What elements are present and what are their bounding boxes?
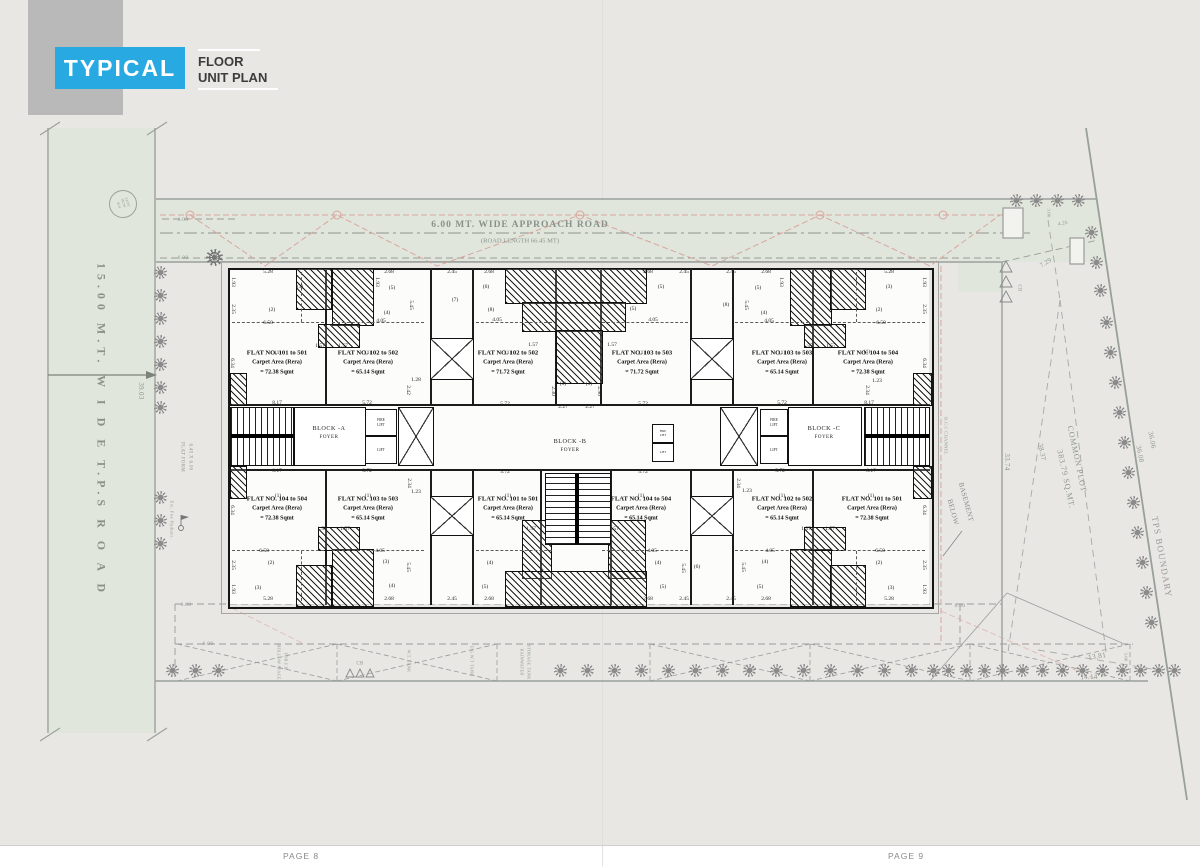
tree-icon	[1109, 376, 1122, 389]
dimension-label: (2)	[269, 307, 275, 313]
dimension-label: (1)	[638, 493, 644, 499]
dimension-label: 6.34	[229, 505, 235, 515]
tree-icon	[1127, 496, 1140, 509]
tree-icon	[1010, 194, 1023, 207]
dimension-label: 5.28	[884, 596, 894, 602]
tree-icon	[797, 664, 810, 677]
footer-strip	[0, 845, 1200, 867]
dimension-label: 2.90	[596, 386, 602, 396]
site-label: 6.00	[203, 641, 214, 647]
dimension-label: 2.68	[484, 596, 494, 602]
site-label: 13.81	[1087, 650, 1107, 662]
dimension-label: (2)	[876, 307, 882, 313]
dimension-label: (1)	[864, 349, 870, 355]
site-label: 33.74	[1003, 453, 1011, 470]
tree-icon	[1076, 664, 1089, 677]
dimension-label: 1.93	[921, 277, 927, 287]
tree-icon	[1145, 616, 1158, 629]
dimension-label: (4)	[487, 560, 493, 566]
dimension-label: 5.28	[263, 596, 273, 602]
dimension-label: 6.34	[921, 358, 927, 368]
dimension-label: 2.27	[558, 404, 568, 410]
dimension-label: 5.72	[638, 401, 648, 407]
dimension-label: 1.57	[607, 342, 617, 348]
dimension-label: 4.05	[647, 548, 657, 554]
dimension-label: 8.17	[272, 468, 282, 474]
dimension-label: 1.57	[340, 526, 350, 532]
dimension-label: (8)	[723, 302, 729, 308]
dimension-label: 2.45	[679, 596, 689, 602]
site-label: U.G.W.T TANK	[470, 645, 475, 676]
tree-icon	[581, 664, 594, 677]
tree-icon	[1085, 226, 1098, 239]
dimension-label: 2.45	[726, 596, 736, 602]
dimension-label: 5.72	[500, 469, 510, 475]
dimension-label: 5.72	[638, 469, 648, 475]
site-label: 7.29	[1039, 257, 1053, 270]
dimension-label: (4)	[389, 583, 395, 589]
dimension-label: 5.72	[500, 401, 510, 407]
dimension-label: 2.68	[643, 596, 653, 602]
dimension-label: (2)	[268, 560, 274, 566]
dimension-label: 2.34	[735, 478, 741, 488]
dimension-label: 8.17	[864, 400, 874, 406]
dimension-label: 2.34	[406, 478, 412, 488]
dimension-label: (7)	[452, 297, 458, 303]
dimension-label: 1.57	[825, 526, 835, 532]
page-number-right: PAGE 9	[888, 851, 924, 861]
dimension-label: 5.45	[743, 300, 749, 310]
tree-icon	[154, 514, 167, 527]
dimension-label: 1.93	[374, 277, 380, 287]
dimension-label: (1)	[560, 381, 566, 387]
tree-icon	[978, 664, 991, 677]
dimension-label: 2.68	[384, 596, 394, 602]
dimension-label: (5)	[482, 584, 488, 590]
dimension-label: 4.05	[376, 318, 386, 324]
dimension-label: 1.23	[742, 488, 752, 494]
tree-icon	[1168, 664, 1181, 677]
dimension-label: (4)	[762, 559, 768, 565]
dimension-label: 6.34	[921, 505, 927, 515]
site-label: CB	[356, 662, 363, 667]
sheet: TYPICAL FLOOR UNIT PLAN 6.00 MT. WIDE AP…	[0, 0, 1200, 866]
dimension-label: (3)	[888, 585, 894, 591]
tree-icon	[1090, 256, 1103, 269]
tree-icon	[1072, 194, 1085, 207]
dimension-label: 2.30	[550, 386, 556, 396]
tree-icon	[1136, 556, 1149, 569]
dimension-label: 2.42	[405, 385, 411, 395]
tree-icon	[927, 664, 940, 677]
tree-icon	[154, 491, 167, 504]
dimension-label: (1)	[365, 350, 371, 356]
dimension-label: 1.28	[411, 377, 421, 383]
dimension-label: 2.35	[921, 560, 927, 570]
tree-icon	[1134, 664, 1147, 677]
site-label: 6.00	[955, 603, 966, 609]
site-label: 6.45 X 6.00	[188, 444, 193, 471]
dimension-label: 2.35	[921, 304, 927, 314]
dimension-label: (1)	[365, 493, 371, 499]
dimension-label: 5.72	[775, 468, 785, 474]
dimension-label: (1)	[275, 493, 281, 499]
dimension-label: (1)	[868, 493, 874, 499]
dimension-label: 6.34	[229, 358, 235, 368]
site-label: W.T. TANK	[407, 650, 412, 673]
dimension-label: 1.57	[315, 343, 325, 349]
dimension-label: 5.45	[408, 300, 414, 310]
dimension-label: 4.05	[492, 317, 502, 323]
dimension-label: 4.05	[648, 317, 658, 323]
dimension-label: 1.93	[230, 584, 236, 594]
dimension-label: 5.45	[405, 562, 411, 572]
dimension-label: 1.93	[230, 277, 236, 287]
page-number-left: PAGE 8	[283, 851, 319, 861]
tree-icon	[689, 664, 702, 677]
dimension-label: (1)	[779, 350, 785, 356]
dimension-label: (4)	[761, 310, 767, 316]
tree-icon	[212, 664, 225, 677]
dimension-label: (5)	[658, 284, 664, 290]
tree-icon	[608, 664, 621, 677]
dimension-label: 6.50	[259, 548, 269, 554]
tree-icon	[154, 266, 167, 279]
tree-icon	[662, 664, 675, 677]
dimension-label: 1.57	[803, 343, 813, 349]
site-label: HOLLOW SPACE	[277, 644, 282, 679]
tree-icon	[1152, 664, 1165, 677]
tree-icon	[1096, 664, 1109, 677]
dimension-label: (1)	[505, 350, 511, 356]
tree-icon	[166, 664, 179, 677]
dimension-label: 6.50	[263, 320, 273, 326]
site-label: Ext. Fire Hydrant	[170, 501, 175, 538]
dimension-label: (2)	[876, 560, 882, 566]
dimension-label: 1.57	[801, 526, 811, 532]
footer-divider	[602, 846, 603, 866]
tree-icon	[154, 335, 167, 348]
tree-icon	[554, 664, 567, 677]
dimension-label: (5)	[389, 285, 395, 291]
site-label: STORAGE TANK	[527, 644, 532, 679]
site-label: CB	[1017, 284, 1022, 291]
tree-icon	[1131, 526, 1144, 539]
dimension-label: 2.68	[384, 269, 394, 275]
site-label: PLAT FORM	[180, 442, 185, 472]
tree-icon	[1100, 316, 1113, 329]
dimension-label: 2.45	[447, 596, 457, 602]
dimension-label: 8.17	[272, 400, 282, 406]
site-label: 3.00	[1047, 208, 1052, 217]
tree-icon	[1094, 284, 1107, 297]
dimension-label: (6)	[483, 284, 489, 290]
dimension-label: (1)	[586, 381, 592, 387]
site-label: 38.37	[1036, 443, 1047, 462]
dimension-label: 2.68	[761, 269, 771, 275]
tree-icon	[154, 312, 167, 325]
dimension-label: 2.68	[643, 269, 653, 275]
dimension-label: 1.23	[872, 378, 882, 384]
dimension-label: (5)	[660, 584, 666, 590]
site-label: 6.00	[178, 217, 189, 223]
tree-icon	[1036, 664, 1049, 677]
tree-icon	[905, 664, 918, 677]
dimension-label: (3)	[383, 559, 389, 565]
site-label: 36.06	[1146, 431, 1157, 449]
tree-icon	[1122, 466, 1135, 479]
dimension-label: 2.45	[447, 269, 457, 275]
dimension-label: 2.34	[864, 385, 870, 395]
dimension-label: (1)	[275, 350, 281, 356]
dimension-label: 5.72	[362, 400, 372, 406]
tree-icon	[942, 664, 955, 677]
dimension-label: 1.57	[338, 343, 348, 349]
dimension-label: 2.45	[679, 269, 689, 275]
dimension-label: 4.05	[765, 548, 775, 554]
dimension-label: 2.27	[585, 404, 595, 410]
dimension-label: 1.57	[609, 526, 619, 532]
tree-icon	[960, 664, 973, 677]
dimension-label: 4.05	[764, 318, 774, 324]
dimension-label: (1)	[639, 350, 645, 356]
dimension-label: 2.45	[726, 269, 736, 275]
dimension-label: 1.57	[317, 526, 327, 532]
site-label: 4.26	[1058, 221, 1069, 228]
dimension-label: 5.28	[884, 269, 894, 275]
dimension-label: (1)	[779, 493, 785, 499]
tree-icon	[154, 289, 167, 302]
dimension-label: (5)	[757, 584, 763, 590]
tree-icon	[1051, 194, 1064, 207]
dimension-label: 1.57	[826, 343, 836, 349]
dimension-label: 2.35	[230, 560, 236, 570]
dimension-label: 5.72	[777, 400, 787, 406]
site-label: FOR F.B.	[284, 653, 289, 671]
dimension-label: 5.45	[740, 562, 746, 572]
tree-icon	[1116, 664, 1129, 677]
tree-icon	[154, 537, 167, 550]
dimension-label: 1.57	[528, 342, 538, 348]
dimension-label: 2.35	[230, 304, 236, 314]
dimension-label: 5.28	[263, 269, 273, 275]
dimension-label: (4)	[655, 560, 661, 566]
dimension-label: (3)	[255, 585, 261, 591]
tree-icon	[1113, 406, 1126, 419]
site-label: RAINWATER	[520, 649, 525, 676]
tree-icon	[635, 664, 648, 677]
site-label: 6.00	[178, 255, 189, 261]
dimension-label: 2.68	[761, 596, 771, 602]
dimension-label: (3)	[297, 284, 303, 290]
dimension-label: (5)	[755, 285, 761, 291]
tree-icon	[1118, 436, 1131, 449]
tree-icon	[154, 381, 167, 394]
dimension-label: (3)	[886, 284, 892, 290]
dimension-label: 6.50	[875, 548, 885, 554]
dimension-label: 1.23	[411, 489, 421, 495]
tree-icon	[716, 664, 729, 677]
dimension-label: (4)	[384, 310, 390, 316]
tree-icon	[743, 664, 756, 677]
dimension-label: 4.05	[375, 548, 385, 554]
tree-icon	[1016, 664, 1029, 677]
tree-icon	[770, 664, 783, 677]
site-label: 3.00	[1124, 652, 1129, 661]
tree-icon	[154, 358, 167, 371]
site-label: 39.03	[137, 382, 145, 399]
dimension-label: 1.93	[778, 277, 784, 287]
dimension-label: 1.57	[526, 526, 536, 532]
dimension-label: (1)	[505, 493, 511, 499]
dimension-label: (5)	[630, 306, 636, 312]
tree-icon	[1030, 194, 1043, 207]
tree-icon	[851, 664, 864, 677]
tree-icon	[996, 664, 1009, 677]
tree-icon	[189, 664, 202, 677]
tree-icon	[878, 664, 891, 677]
tree-icon	[1104, 346, 1117, 359]
dimension-label: (8)	[488, 307, 494, 313]
dimension-label: 5.45	[538, 563, 544, 573]
dimension-label: 6.50	[876, 320, 886, 326]
annotation-layer: 5.282.682.452.682.682.452.452.685.281.93…	[0, 0, 1200, 866]
dimension-label: (6)	[694, 564, 700, 570]
tree-icon	[824, 664, 837, 677]
dimension-label: 2.68	[484, 269, 494, 275]
dimension-label: 8.17	[866, 468, 876, 474]
dimension-label: 5.45	[680, 563, 686, 573]
tree-icon	[1056, 664, 1069, 677]
site-label: 6.00	[181, 602, 192, 608]
site-label: 36.08	[1134, 445, 1145, 463]
tree-icon	[1140, 586, 1153, 599]
dimension-label: 1.93	[921, 584, 927, 594]
dimension-label: 5.72	[362, 468, 372, 474]
tree-icon	[154, 401, 167, 414]
